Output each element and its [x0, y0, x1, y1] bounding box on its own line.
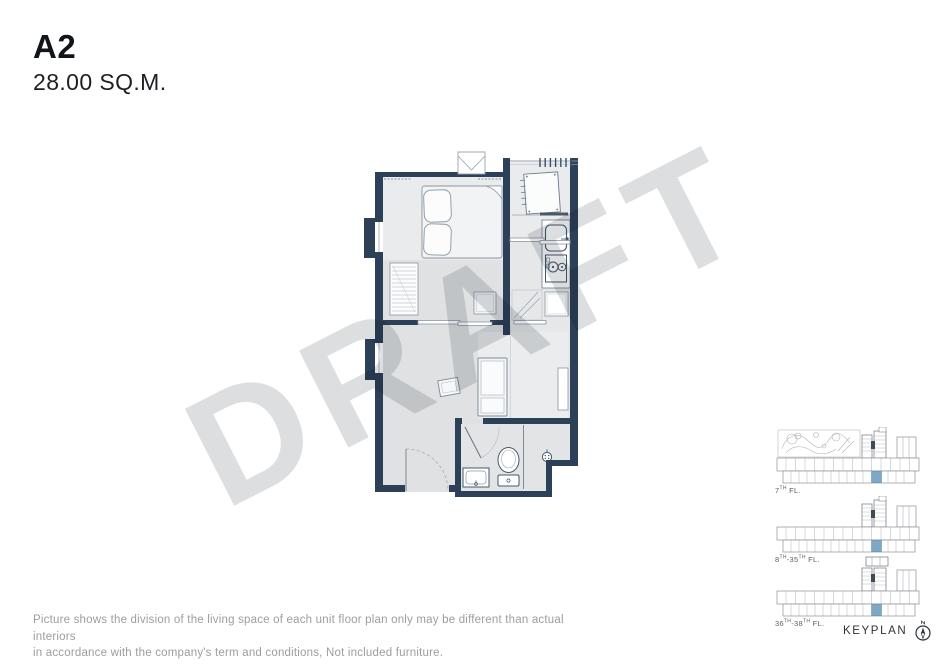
garden-podium: [778, 430, 860, 457]
disclaimer: Picture shows the division of the living…: [33, 612, 603, 662]
kitchen-sink-icon: [546, 225, 569, 251]
unit-area: 28.00 SQ.M.: [33, 69, 167, 96]
bed-icon: [422, 186, 502, 258]
vanity-sink-icon: [463, 468, 489, 487]
right-wing: [897, 570, 916, 591]
floor-plan-page: A2 28.00 SQ.M.: [0, 0, 951, 670]
desk-icon: [558, 368, 568, 410]
keyplan-heading: KEYPLAN: [843, 625, 907, 637]
bedside-table-icon: [474, 292, 496, 314]
compass-north-icon: [914, 620, 932, 642]
unit-strip: [777, 527, 919, 552]
keyplan-7th-fl-label: 7TH FL.: [775, 486, 943, 495]
unit-floor-plan: [362, 146, 584, 514]
disclaimer-line-1: Picture shows the division of the living…: [33, 612, 603, 645]
highlighted-unit: [872, 541, 882, 552]
highlighted-unit: [872, 605, 882, 616]
keyplan-36th-38th-fl-drawing: [775, 556, 943, 618]
keyplan-7th-fl-drawing: [775, 427, 943, 485]
toilet-icon: [498, 448, 519, 487]
ac-unit-icon: [520, 172, 561, 215]
keyplan-heading-row: KEYPLAN: [843, 620, 932, 642]
shaft-box-icon: [458, 152, 485, 174]
sofa-icon: [478, 358, 507, 416]
right-wing: [897, 437, 916, 458]
tv-icon: [438, 377, 460, 396]
wardrobe-icon: [390, 263, 418, 315]
keyplan-7th-fl: 7TH FL.: [775, 427, 943, 495]
keyplan-36th-38th-fl: 36TH-38TH FL.: [775, 556, 943, 628]
tower-core: [862, 568, 886, 591]
stove-icon: [546, 255, 567, 282]
floor-plan-drawing: [362, 146, 584, 514]
right-wing: [897, 506, 916, 527]
tower-core: [862, 496, 886, 527]
tower-top-box: [866, 557, 888, 566]
tower-core: [862, 427, 886, 458]
unit-name: A2: [33, 28, 76, 66]
unit-strip: [777, 458, 919, 483]
disclaimer-line-2: in accordance with the company's term an…: [33, 645, 603, 662]
washer-icon: [545, 292, 568, 316]
unit-strip: [777, 591, 919, 616]
keyplan-8th-35th-fl-drawing: [775, 496, 943, 554]
keyplan-8th-35th-fl: 8TH-35TH FL.: [775, 496, 943, 564]
highlighted-unit: [872, 472, 882, 483]
